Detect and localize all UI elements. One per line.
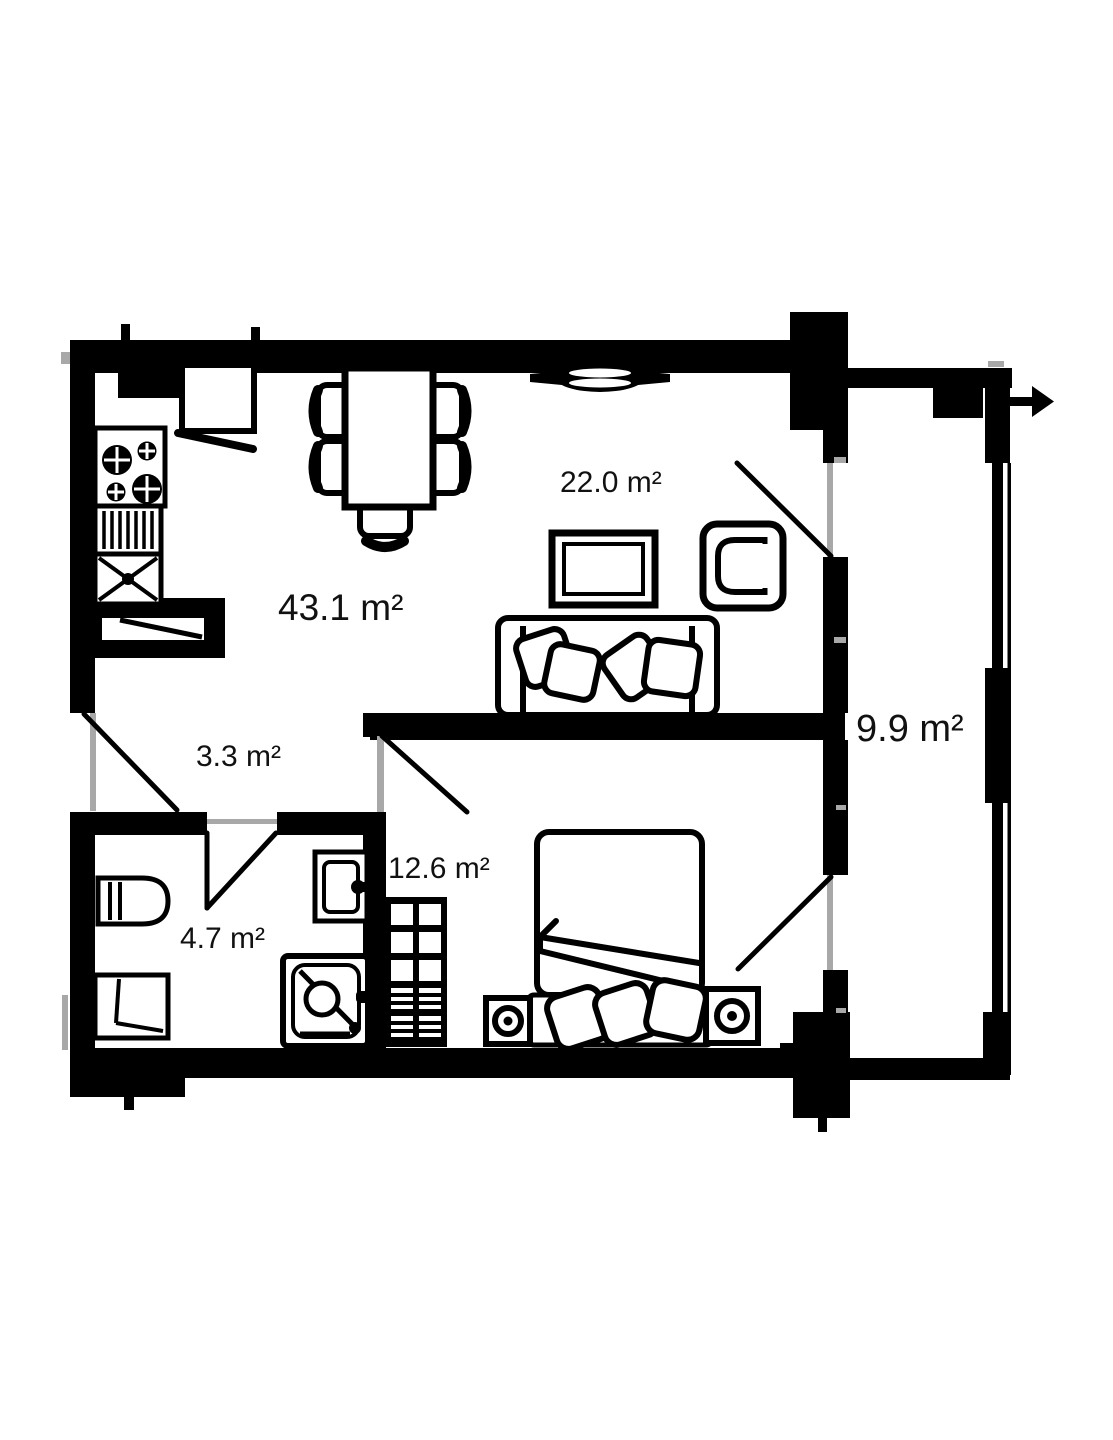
washing-machine-icon	[98, 878, 168, 924]
wardrobe-icon	[383, 897, 447, 1047]
tv-icon	[552, 533, 655, 605]
floor-plan-svg: 43.1 m² 22.0 m² 3.3 m² 4.7 m² 12.6 m² 9.…	[0, 0, 1113, 1440]
floor-plan: 43.1 m² 22.0 m² 3.3 m² 4.7 m² 12.6 m² 9.…	[0, 0, 1113, 1440]
interior-walls	[70, 598, 845, 1048]
stove-icon	[95, 428, 165, 506]
dining-table-icon	[314, 368, 467, 547]
kitchen-sink-icon	[95, 554, 161, 604]
exit-arrow-icon	[1005, 386, 1054, 417]
kitchen-cabinet-icon	[100, 616, 206, 642]
room-area-label-bedroom: 12.6 m²	[388, 852, 490, 885]
bedroom-door-swing-icon	[382, 736, 467, 812]
room-area-label-balcony: 9.9 m²	[856, 708, 964, 750]
drainboard-icon	[95, 506, 161, 554]
toilet-icon	[95, 975, 168, 1038]
entry-door-swing-icon	[84, 714, 177, 810]
armchair-icon	[703, 524, 783, 608]
fridge-icon	[178, 365, 254, 449]
shower-icon	[283, 956, 378, 1046]
room-area-label-hallway: 3.3 m²	[196, 740, 281, 773]
sofa-icon	[498, 618, 717, 715]
room-area-label-kitchen-living: 43.1 m²	[278, 587, 403, 628]
bed-icon	[528, 832, 712, 1052]
room-area-label-living: 22.0 m²	[560, 466, 662, 499]
bedroom-balcony-door-swing-icon	[738, 877, 831, 969]
room-area-label-bathroom: 4.7 m²	[180, 922, 265, 955]
